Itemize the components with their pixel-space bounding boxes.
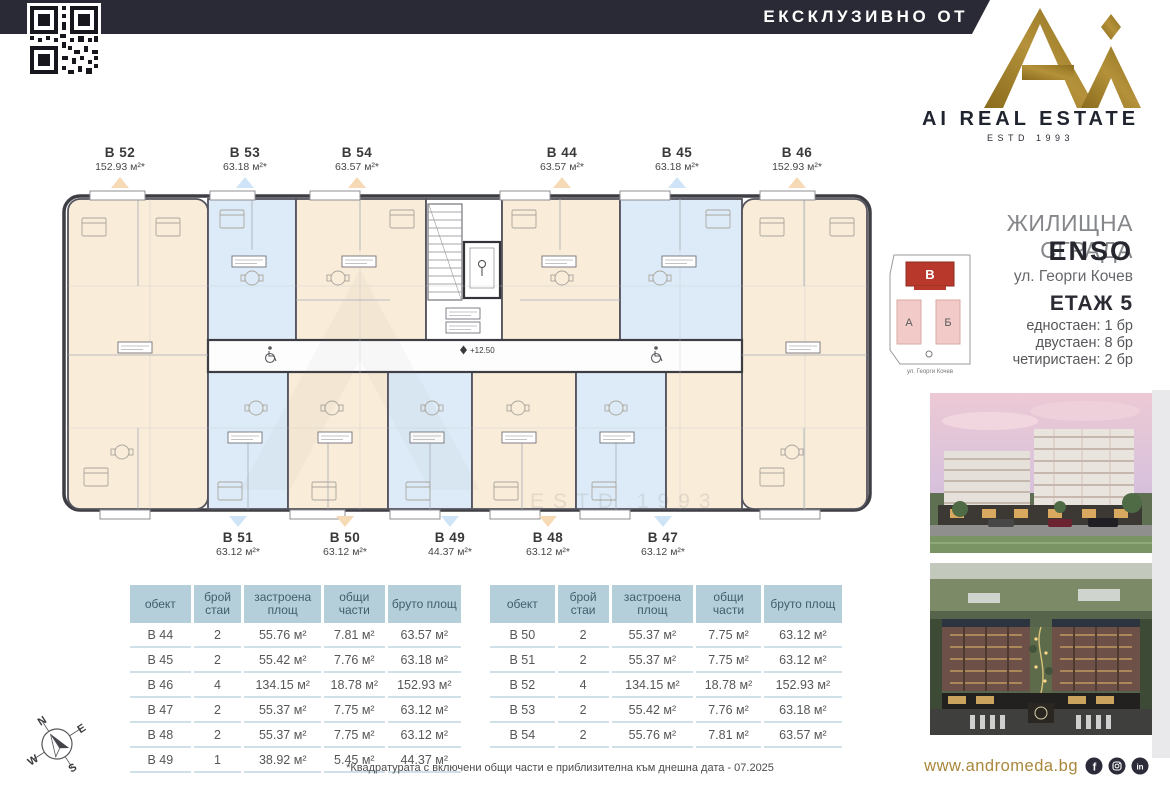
table-row: B 464134.15 м²18.78 м²152.93 м² bbox=[130, 673, 461, 698]
col-common-parts: общи части bbox=[696, 585, 761, 623]
unit-marker-triangle bbox=[788, 177, 806, 188]
col-built-area: застроена площ bbox=[244, 585, 321, 623]
site-block-a: А bbox=[905, 317, 913, 329]
exclusive-label: ЕКСКЛУЗИВНО ОТ bbox=[700, 7, 968, 27]
col-object: обект bbox=[130, 585, 191, 623]
table-row: B 50255.37 м²7.75 м²63.12 м² bbox=[490, 623, 842, 648]
linkedin-icon[interactable]: in bbox=[1131, 757, 1149, 775]
unit-marker-triangle bbox=[441, 516, 459, 527]
site-plan: В А Б ул. Георги Кочев bbox=[884, 252, 976, 376]
col-rooms: брой стаи bbox=[194, 585, 242, 623]
unit-label-b48: B 48 63.12 м²* bbox=[493, 516, 603, 558]
unit-label-b53: B 53 63.18 м²* bbox=[190, 145, 300, 188]
unit-marker-triangle bbox=[336, 516, 354, 527]
unit-label-b50: B 50 63.12 м²* bbox=[290, 516, 400, 558]
unit-marker-triangle bbox=[539, 516, 557, 527]
unit-marker-triangle bbox=[348, 177, 366, 188]
brand-estd: ESTD 1993 bbox=[908, 133, 1153, 143]
unit-marker-triangle bbox=[654, 516, 672, 527]
table-header-row: обект брой стаи застроена площ общи част… bbox=[130, 585, 461, 623]
brand-name: AI REAL ESTATE bbox=[908, 108, 1153, 131]
table-row: B 47255.37 м²7.75 м²63.12 м² bbox=[130, 698, 461, 723]
area-table-right: обект брой стаи застроена площ общи част… bbox=[487, 585, 845, 748]
aerial-render-photo bbox=[930, 563, 1152, 735]
area-table-left: обект брой стаи застроена площ общи част… bbox=[127, 585, 464, 773]
col-gross-area: бруто площ bbox=[388, 585, 461, 623]
svg-text:f: f bbox=[1093, 762, 1097, 774]
svg-text:W: W bbox=[26, 752, 42, 768]
table-row: B 54255.76 м²7.81 м²63.57 м² bbox=[490, 723, 842, 748]
unit-label-b52: B 52 152.93 м²* bbox=[65, 145, 175, 188]
site-block-mid: Б bbox=[944, 317, 951, 329]
social-links: f in bbox=[1085, 757, 1149, 775]
compass-icon: N E S W bbox=[22, 712, 92, 778]
unit-marker-triangle bbox=[553, 177, 571, 188]
table-row: B 51255.37 м²7.75 м²63.12 м² bbox=[490, 648, 842, 673]
col-gross-area: бруто площ bbox=[764, 585, 842, 623]
col-rooms: брой стаи bbox=[558, 585, 609, 623]
site-street-label: ул. Георги Кочев bbox=[907, 369, 953, 375]
elevation-label: +12.50 bbox=[470, 346, 495, 355]
svg-text:E: E bbox=[76, 722, 89, 736]
table-row: B 44255.76 м²7.81 м²63.57 м² bbox=[130, 623, 461, 648]
table-row: B 45255.42 м²7.76 м²63.18 м² bbox=[130, 648, 461, 673]
unit-marker-triangle bbox=[229, 516, 247, 527]
qr-code-icon bbox=[30, 6, 98, 74]
unit-label-b45: B 45 63.18 м²* bbox=[622, 145, 732, 188]
unit-label-b44: B 44 63.57 м²* bbox=[507, 145, 617, 188]
unit-label-b49: B 49 44.37 м²* bbox=[395, 516, 505, 558]
svg-text:in: in bbox=[1136, 763, 1143, 772]
facebook-icon[interactable]: f bbox=[1085, 757, 1103, 775]
flyer-page: ЕКСКЛУЗИВНО ОТ AI REAL ESTATE ESTD 1993 … bbox=[0, 0, 1170, 785]
unit-marker-triangle bbox=[236, 177, 254, 188]
col-built-area: застроена площ bbox=[612, 585, 694, 623]
unit-marker-triangle bbox=[111, 177, 129, 188]
unit-label-b54: B 54 63.57 м²* bbox=[302, 145, 412, 188]
plan-watermark: ESTD 1993 bbox=[530, 490, 720, 513]
table-row: B 524134.15 м²18.78 м²152.93 м² bbox=[490, 673, 842, 698]
unit-label-b51: B 51 63.12 м²* bbox=[183, 516, 293, 558]
svg-text:S: S bbox=[66, 761, 79, 775]
table-row: B 53255.42 м²7.76 м²63.18 м² bbox=[490, 698, 842, 723]
site-block-b: В bbox=[925, 267, 934, 282]
side-strip bbox=[1152, 390, 1170, 758]
building-render-photo bbox=[930, 393, 1152, 553]
svg-text:N: N bbox=[36, 714, 49, 728]
footnote: *Квадратурата с включени общи части е пр… bbox=[120, 762, 1000, 774]
qr-code bbox=[27, 3, 101, 77]
col-object: обект bbox=[490, 585, 555, 623]
website-link[interactable]: www.andromeda.bg bbox=[900, 757, 1078, 776]
unit-label-b47: B 47 63.12 м²* bbox=[608, 516, 718, 558]
unit-label-b46: B 46 152.93 м²* bbox=[742, 145, 852, 188]
table-header-row: обект брой стаи застроена площ общи част… bbox=[490, 585, 842, 623]
col-common-parts: общи части bbox=[324, 585, 385, 623]
brand-logo-icon bbox=[978, 8, 1143, 108]
table-row: B 48255.37 м²7.75 м²63.12 м² bbox=[130, 723, 461, 748]
unit-marker-triangle bbox=[668, 177, 686, 188]
floor-plan: +12.50 bbox=[60, 190, 875, 520]
instagram-icon[interactable] bbox=[1108, 757, 1126, 775]
